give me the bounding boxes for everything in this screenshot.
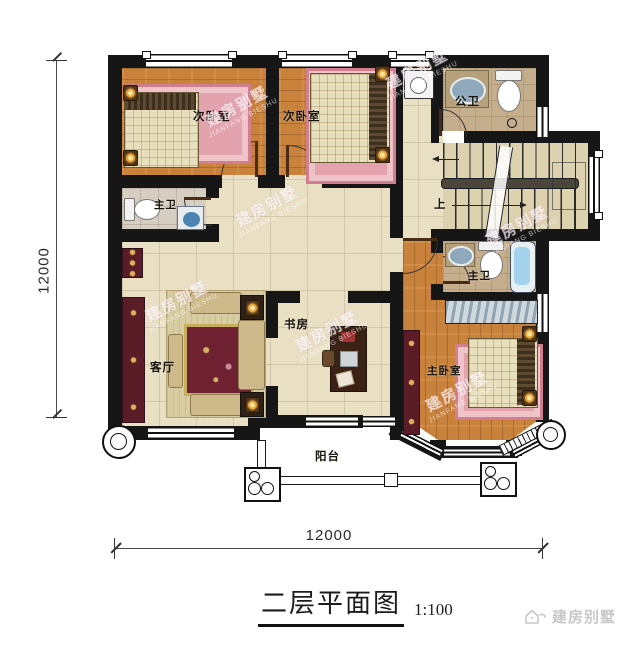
wall-stair-bottom (431, 229, 600, 241)
laundry-machine (404, 70, 434, 99)
wall-notch (594, 150, 603, 158)
wall-bathleft-bottom (108, 229, 219, 242)
stair-direction-line (452, 205, 522, 206)
study-desk (330, 326, 367, 392)
wall-notch (142, 51, 151, 59)
wall-notch (425, 51, 434, 59)
wall-publicbath-bottom-b (464, 131, 536, 143)
wardrobe (445, 300, 538, 324)
desk-laptop (340, 351, 358, 367)
drawing-title: 二层平面图 1:100 (258, 583, 453, 627)
public-toilet-bowl (497, 80, 521, 112)
wall-publicbath-bottom-a (431, 131, 439, 143)
public-bath-label: 公卫 (455, 93, 480, 109)
wall-bedroom-a-bottom-l (122, 175, 222, 188)
house-logo-icon (522, 607, 548, 627)
balcony-rail-front (257, 476, 497, 485)
bedroom-a-label: 次卧室 (193, 108, 231, 124)
bathtub-inner (514, 247, 530, 285)
drawing-title-text: 二层平面图 (258, 583, 404, 627)
wall-notch (278, 51, 287, 59)
balcony-rail-post (384, 473, 398, 487)
bath-left-label: 主卫 (154, 197, 177, 212)
window-bedroom-a (146, 54, 232, 68)
master-lamp (522, 326, 537, 342)
study-chair (322, 350, 335, 367)
desk-papers (336, 370, 355, 387)
wall-left (108, 55, 122, 440)
side-cabinet (122, 248, 143, 278)
column-circle-icon (497, 477, 510, 490)
tv-cabinet (122, 297, 145, 423)
column-circle-icon (248, 482, 261, 495)
bedroom-a-lamp (123, 150, 138, 166)
wall-study-left-a (266, 303, 278, 338)
master-toilet-tank (478, 241, 504, 251)
stair-upper-arrow-icon (432, 156, 439, 162)
floor-plan-canvas: 上 (0, 0, 640, 647)
master-dresser (403, 330, 420, 435)
stair-up-label: 上 (434, 196, 447, 212)
window-study (306, 416, 358, 427)
floor-drain-icon (507, 118, 517, 128)
wall-study-top-b (348, 291, 403, 303)
lamp-glow-icon (245, 397, 260, 413)
master-lamp (522, 390, 537, 406)
corner-column-bay-inner (543, 427, 558, 442)
lamp-glow-icon (245, 300, 260, 316)
balcony-door-threshold (363, 416, 395, 427)
living-label: 客厅 (150, 359, 175, 375)
wall-master-right-a (536, 241, 549, 294)
balcony-label: 阳台 (315, 448, 340, 464)
desk-item-red (341, 332, 355, 342)
master-bedroom-label: 主卧室 (427, 363, 462, 378)
dim-tick (46, 417, 67, 418)
wall-notch (228, 51, 237, 59)
wall-study-top-a (266, 291, 300, 303)
wall-bedroom-a-right (266, 68, 279, 175)
wall-notch (388, 51, 397, 59)
sofa-bottom (190, 394, 242, 416)
window-living (148, 427, 234, 439)
wall-notch (594, 212, 603, 220)
column-circle-icon (484, 477, 497, 490)
stair-upper-line (439, 159, 459, 160)
dim-label-width: 12000 (299, 527, 359, 544)
column-circle-icon (485, 466, 496, 477)
brand-logo: 建房别墅 (522, 606, 616, 627)
window-public-bath (536, 107, 549, 137)
study-label: 书房 (284, 316, 309, 332)
wall-bedroom-a-bottom-r (258, 175, 285, 188)
corner-table-lamp (240, 295, 264, 320)
sofa-top (190, 292, 242, 314)
bath-left-basin (181, 210, 202, 229)
column-circle-icon (249, 471, 260, 482)
bedroom-b-label: 次卧室 (283, 108, 321, 124)
wall-masterbath-bottom (431, 292, 549, 300)
bedroom-b-lamp (375, 147, 390, 163)
dim-line-left (56, 60, 57, 418)
stair-landing-outline (552, 162, 586, 210)
column-circle-icon (261, 482, 274, 495)
dim-tick (46, 60, 67, 61)
wall-notch (348, 51, 357, 59)
bedroom-a-lamp (123, 85, 138, 101)
stair-arrow-icon (520, 202, 527, 208)
dim-label-height: 12000 (36, 241, 53, 301)
corner-column-living-inner (110, 433, 127, 450)
balcony-column-left (244, 467, 281, 502)
master-bath-sink (448, 246, 474, 266)
balcony-column-right (480, 462, 517, 497)
bathtub (510, 241, 536, 293)
drawing-scale: 1:100 (414, 600, 453, 627)
bedroom-b-lamp (375, 66, 390, 82)
sofa-right (238, 320, 265, 390)
wall-divider-a (390, 175, 403, 238)
wall-stub (248, 415, 260, 440)
laundry-door-icon (410, 77, 427, 94)
window-stair (588, 157, 600, 213)
brand-logo-text: 建房别墅 (552, 606, 616, 627)
corner-table-lamp (240, 392, 264, 417)
window-bedroom-b (282, 54, 352, 68)
dim-line-bottom (115, 548, 543, 549)
master-bath-label: 主卫 (468, 268, 491, 283)
